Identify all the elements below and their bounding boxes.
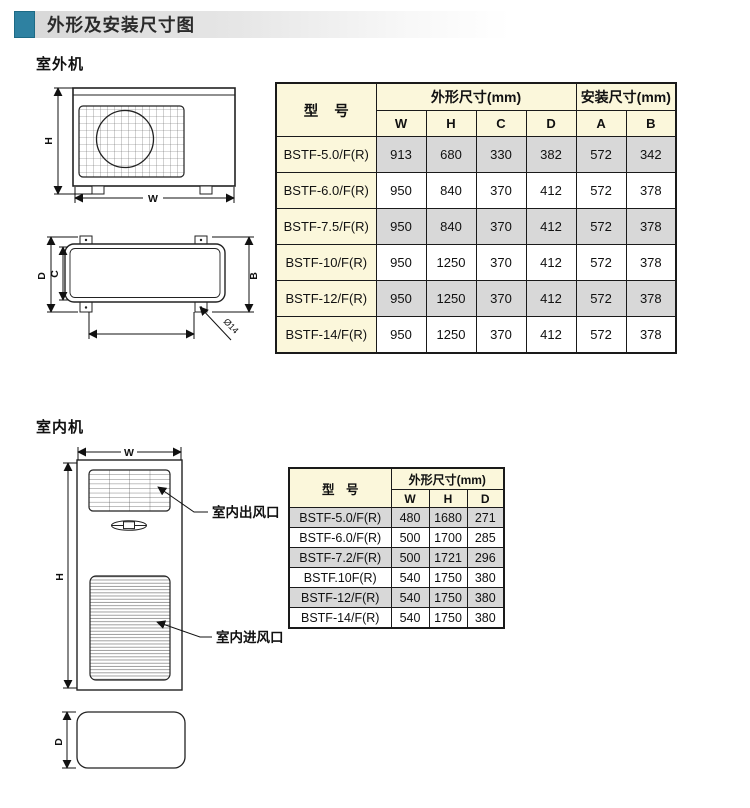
- col-header-b: B: [626, 111, 676, 137]
- dimension-W: W: [78, 447, 181, 460]
- model-cell: BSTF-12/F(R): [289, 588, 391, 608]
- value-cell: 572: [576, 317, 626, 354]
- value-cell: 480: [391, 508, 429, 528]
- dim-label-w: W: [148, 193, 158, 205]
- value-cell: 378: [626, 209, 676, 245]
- spec-sheet-page: 外形及安装尺寸图 室外机 H: [0, 0, 750, 808]
- value-cell: 370: [476, 173, 526, 209]
- dimension-install-width: [89, 312, 194, 339]
- inlet-label: 室内进风口: [216, 629, 284, 645]
- indoor-side-view: D: [53, 712, 185, 768]
- table-row: BSTF-5.0/F(R)913680330382572342: [276, 137, 676, 173]
- col-header-h: H: [429, 490, 467, 508]
- model-cell: BSTF.10F(R): [289, 568, 391, 588]
- outdoor-front-view: H W: [43, 88, 235, 205]
- indoor-front-view: W H 室内出风口 室内进风口: [54, 447, 284, 690]
- value-cell: 370: [476, 209, 526, 245]
- dimension-D: D: [53, 712, 76, 768]
- value-cell: 380: [467, 588, 504, 608]
- value-cell: 500: [391, 548, 429, 568]
- value-cell: 378: [626, 317, 676, 354]
- value-cell: 1250: [426, 245, 476, 281]
- outdoor-dimensions-table: 型 号 外形尺寸(mm) 安装尺寸(mm) W H C D A B BSTF-5…: [275, 82, 677, 354]
- dim-label-c: C: [49, 270, 61, 278]
- dim-label-b: B: [248, 272, 260, 280]
- outdoor-unit-drawing: H W: [30, 60, 260, 360]
- model-cell: BSTF-6.0/F(R): [276, 173, 376, 209]
- col-group-outline: 外形尺寸(mm): [376, 83, 576, 111]
- dim-label-d: D: [53, 738, 65, 746]
- table-row: BSTF-14/F(R)9501250370412572378: [276, 317, 676, 354]
- value-cell: 950: [376, 209, 426, 245]
- mount-hole: [85, 239, 87, 241]
- col-header-w: W: [391, 490, 429, 508]
- dim-label-h: H: [54, 573, 66, 581]
- value-cell: 412: [526, 317, 576, 354]
- table-row: BSTF-7.5/F(R)950840370412572378: [276, 209, 676, 245]
- table-row: BSTF.10F(R)5401750380: [289, 568, 504, 588]
- air-outlet-grille: [89, 470, 170, 511]
- value-cell: 271: [467, 508, 504, 528]
- outdoor-top-view: D C B: [36, 236, 260, 340]
- value-cell: 370: [476, 281, 526, 317]
- col-header-c: C: [476, 111, 526, 137]
- air-inlet-grille: [90, 576, 170, 680]
- model-cell: BSTF-5.0/F(R): [276, 137, 376, 173]
- value-cell: 378: [626, 281, 676, 317]
- model-cell: BSTF-7.5/F(R): [276, 209, 376, 245]
- model-cell: BSTF-6.0/F(R): [289, 528, 391, 548]
- value-cell: 1250: [426, 281, 476, 317]
- outlet-label: 室内出风口: [212, 504, 280, 520]
- model-cell: BSTF-5.0/F(R): [289, 508, 391, 528]
- value-cell: 572: [576, 137, 626, 173]
- col-header-h: H: [426, 111, 476, 137]
- display-window: [124, 522, 135, 529]
- value-cell: 378: [626, 245, 676, 281]
- value-cell: 380: [467, 608, 504, 629]
- table-row: BSTF-5.0/F(R)4801680271: [289, 508, 504, 528]
- value-cell: 412: [526, 245, 576, 281]
- value-cell: 540: [391, 608, 429, 629]
- side-outline: [77, 712, 185, 768]
- value-cell: 296: [467, 548, 504, 568]
- value-cell: 500: [391, 528, 429, 548]
- value-cell: 680: [426, 137, 476, 173]
- value-cell: 370: [476, 317, 526, 354]
- dim-label-d: D: [36, 272, 48, 280]
- col-header-d: D: [467, 490, 504, 508]
- value-cell: 572: [576, 281, 626, 317]
- value-cell: 380: [467, 568, 504, 588]
- col-header-model: 型 号: [276, 83, 376, 137]
- value-cell: 950: [376, 245, 426, 281]
- col-group-install: 安装尺寸(mm): [576, 83, 676, 111]
- value-cell: 540: [391, 588, 429, 608]
- value-cell: 285: [467, 528, 504, 548]
- col-group-outline: 外形尺寸(mm): [391, 468, 504, 490]
- value-cell: 1250: [426, 317, 476, 354]
- value-cell: 1750: [429, 608, 467, 629]
- col-header-w: W: [376, 111, 426, 137]
- indoor-unit-drawing: W H 室内出风口 室内进风口: [30, 440, 300, 790]
- foot-right: [200, 186, 212, 194]
- page-title: 外形及安装尺寸图: [47, 12, 195, 37]
- col-header-model: 型 号: [289, 468, 391, 508]
- value-cell: 950: [376, 281, 426, 317]
- value-cell: 412: [526, 281, 576, 317]
- value-cell: 950: [376, 317, 426, 354]
- value-cell: 1680: [429, 508, 467, 528]
- teal-square-icon: [14, 11, 35, 38]
- value-cell: 840: [426, 173, 476, 209]
- indoor-unit-label: 室内机: [36, 416, 84, 437]
- foot-left: [92, 186, 104, 194]
- model-cell: BSTF-14/F(R): [289, 608, 391, 629]
- table-row: BSTF-7.2/F(R)5001721296: [289, 548, 504, 568]
- value-cell: 572: [576, 209, 626, 245]
- value-cell: 412: [526, 173, 576, 209]
- value-cell: 950: [376, 173, 426, 209]
- indoor-dimensions-table: 型 号 外形尺寸(mm) W H D BSTF-5.0/F(R)48016802…: [288, 467, 505, 629]
- col-header-d: D: [526, 111, 576, 137]
- body-outline: [65, 244, 225, 302]
- value-cell: 840: [426, 209, 476, 245]
- model-cell: BSTF-14/F(R): [276, 317, 376, 354]
- value-cell: 370: [476, 245, 526, 281]
- dim-label-h: H: [43, 137, 55, 145]
- value-cell: 572: [576, 245, 626, 281]
- section-title-bar: 外形及安装尺寸图: [14, 11, 510, 38]
- value-cell: 1700: [429, 528, 467, 548]
- value-cell: 1750: [429, 588, 467, 608]
- table-row: BSTF-14/F(R)5401750380: [289, 608, 504, 629]
- value-cell: 330: [476, 137, 526, 173]
- dim-label-w: W: [124, 447, 134, 459]
- value-cell: 378: [626, 173, 676, 209]
- model-cell: BSTF-12/F(R): [276, 281, 376, 317]
- table-row: BSTF-10/F(R)9501250370412572378: [276, 245, 676, 281]
- value-cell: 572: [576, 173, 626, 209]
- value-cell: 412: [526, 209, 576, 245]
- value-cell: 913: [376, 137, 426, 173]
- value-cell: 382: [526, 137, 576, 173]
- table-row: BSTF-12/F(R)9501250370412572378: [276, 281, 676, 317]
- value-cell: 342: [626, 137, 676, 173]
- table-row: BSTF-12/F(R)5401750380: [289, 588, 504, 608]
- table-row: BSTF-6.0/F(R)950840370412572378: [276, 173, 676, 209]
- mount-hole: [85, 306, 87, 308]
- col-header-a: A: [576, 111, 626, 137]
- model-cell: BSTF-7.2/F(R): [289, 548, 391, 568]
- model-cell: BSTF-10/F(R): [276, 245, 376, 281]
- value-cell: 1721: [429, 548, 467, 568]
- dimension-H: H: [54, 463, 77, 688]
- table-row: BSTF-6.0/F(R)5001700285: [289, 528, 504, 548]
- value-cell: 540: [391, 568, 429, 588]
- mount-hole: [200, 239, 202, 241]
- value-cell: 1750: [429, 568, 467, 588]
